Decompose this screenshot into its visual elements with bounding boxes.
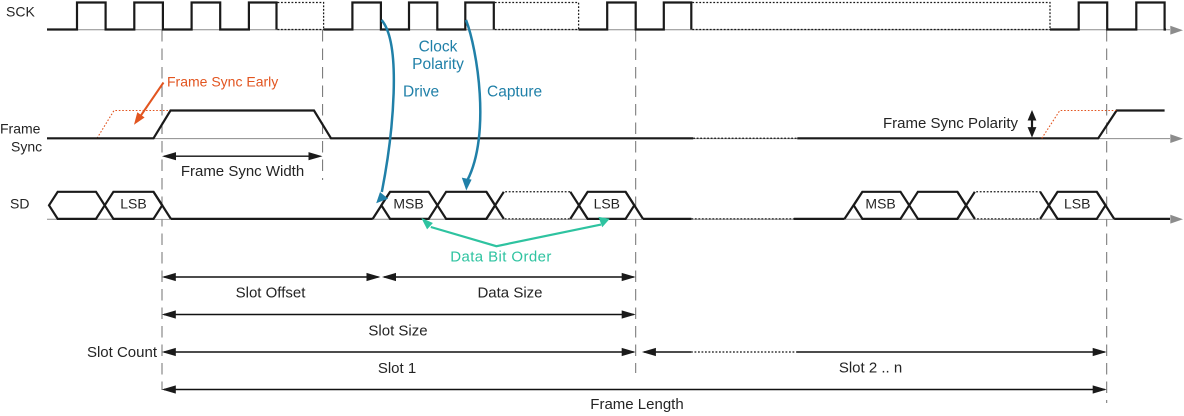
svg-text:Slot 2 .. n: Slot 2 .. n: [839, 360, 902, 377]
svg-text:Data Bit Order: Data Bit Order: [450, 249, 551, 266]
svg-text:Slot Count: Slot Count: [87, 344, 158, 361]
svg-text:MSB: MSB: [393, 196, 423, 212]
svg-text:Clock: Clock: [419, 39, 458, 56]
svg-text:LSB: LSB: [1064, 196, 1090, 212]
svg-text:Frame Sync Width: Frame Sync Width: [181, 163, 304, 180]
svg-text:Slot 1: Slot 1: [378, 360, 416, 377]
svg-text:Polarity: Polarity: [412, 56, 464, 73]
svg-text:LSB: LSB: [120, 196, 146, 212]
svg-text:Slot Size: Slot Size: [368, 323, 427, 340]
svg-text:Data Size: Data Size: [477, 285, 542, 302]
svg-text:Capture: Capture: [487, 84, 542, 101]
svg-text:Frame Length: Frame Length: [590, 396, 683, 413]
svg-text:Sync: Sync: [11, 139, 42, 155]
svg-text:MSB: MSB: [865, 196, 895, 212]
svg-text:Slot Offset: Slot Offset: [236, 285, 307, 302]
svg-text:Frame Sync Polarity: Frame Sync Polarity: [883, 115, 1019, 132]
svg-text:SCK: SCK: [6, 4, 35, 20]
svg-text:SD: SD: [10, 196, 29, 212]
svg-text:Drive: Drive: [403, 83, 439, 100]
svg-text:LSB: LSB: [594, 196, 620, 212]
svg-text:Frame Sync Early: Frame Sync Early: [167, 74, 278, 90]
svg-text:Frame: Frame: [0, 121, 41, 137]
